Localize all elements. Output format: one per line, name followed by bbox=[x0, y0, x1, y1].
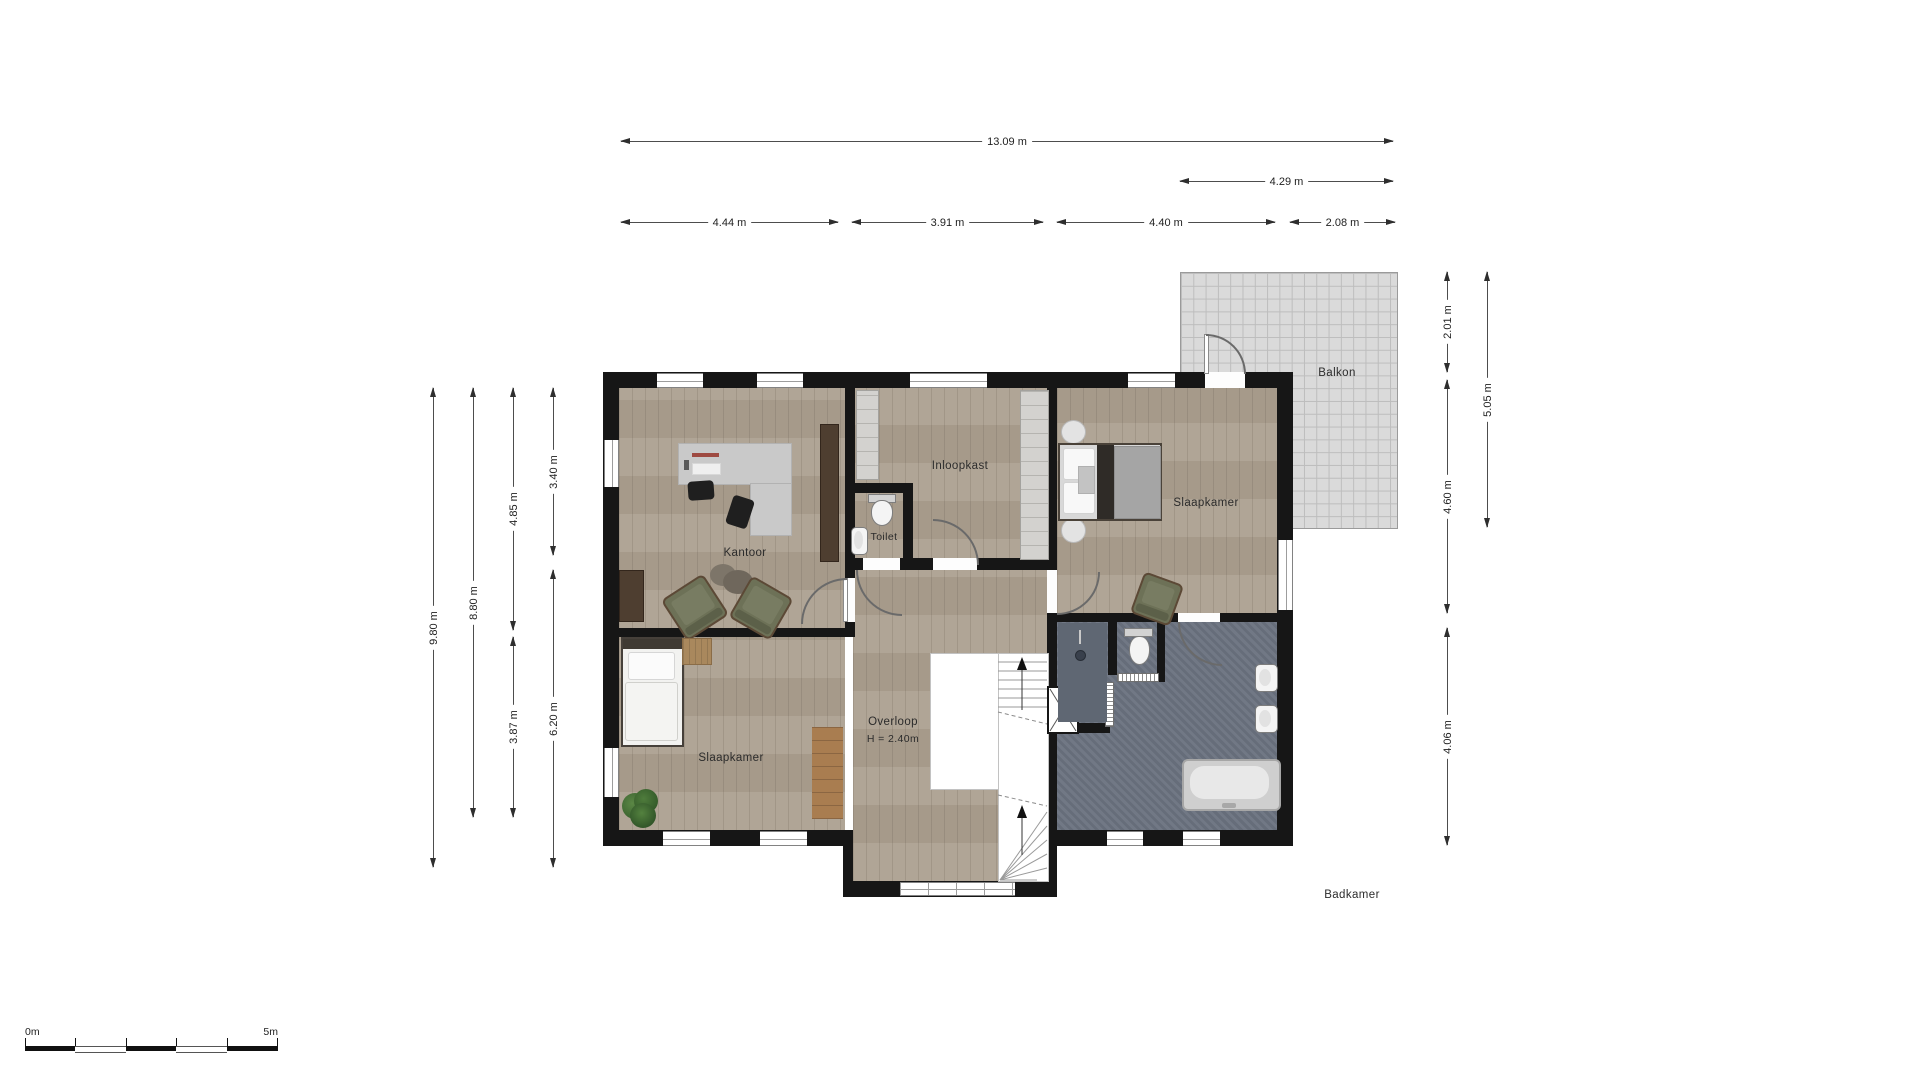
toilet-sink-basin bbox=[854, 531, 863, 549]
bed-left-duvet bbox=[625, 682, 678, 741]
arrow-up-icon bbox=[510, 636, 516, 646]
dim-balcony-top-depth: 2.01 m bbox=[1447, 272, 1448, 372]
arrow-right-icon bbox=[1384, 178, 1394, 184]
scale-segment-black bbox=[126, 1046, 176, 1051]
dim-middle-width-label: 3.91 m bbox=[926, 217, 970, 229]
arrow-down-icon bbox=[430, 858, 436, 868]
dim-balcony-full-depth-label: 5.05 m bbox=[1482, 378, 1494, 422]
bed-left-headboard bbox=[623, 639, 682, 649]
scale-segment-black bbox=[227, 1046, 278, 1051]
dim-badkamer-depth-label: 4.06 m bbox=[1442, 715, 1454, 759]
kantoor-low-cabinet bbox=[619, 570, 644, 622]
wooden-rug bbox=[812, 727, 843, 819]
bathtub bbox=[1182, 759, 1281, 811]
dim-lower-left-depth: 6.20 m bbox=[553, 570, 554, 867]
bathtub-inner bbox=[1190, 766, 1269, 799]
arrow-left-icon bbox=[620, 138, 630, 144]
arrow-up-icon bbox=[1444, 627, 1450, 637]
window-inloopkast-top bbox=[910, 373, 987, 388]
shower-head bbox=[1079, 630, 1081, 644]
wc-nook-glass bbox=[1117, 673, 1159, 682]
dim-top-total-label: 13.09 m bbox=[982, 136, 1032, 148]
room-label-badkamer: Badkamer bbox=[1324, 889, 1380, 901]
arrow-down-icon bbox=[510, 808, 516, 818]
window-kantoor-top-1 bbox=[657, 373, 703, 388]
window-kantoor-left bbox=[604, 440, 619, 487]
room-label-balkon: Balkon bbox=[1318, 367, 1356, 379]
window-kantoor-top-2 bbox=[757, 373, 803, 388]
room-label-slaapkamer-right: Slaapkamer bbox=[1173, 497, 1238, 509]
scale-segment-white bbox=[75, 1046, 126, 1053]
dim-balcony-overhang-label: 2.08 m bbox=[1321, 217, 1365, 229]
wc-bowl bbox=[1129, 636, 1150, 665]
arrow-down-icon bbox=[470, 808, 476, 818]
toilet-wall-right bbox=[903, 483, 913, 570]
bathroom-sink-1-basin bbox=[1259, 669, 1271, 686]
kantoor-east-wall-lower bbox=[845, 622, 855, 637]
arrow-right-icon bbox=[1386, 219, 1396, 225]
toilet-wall-bottom-left bbox=[845, 558, 863, 570]
bed-right-band bbox=[1097, 445, 1114, 519]
arrow-left-icon bbox=[1289, 219, 1299, 225]
bedside-shelf bbox=[682, 638, 712, 665]
toilet-sink bbox=[851, 527, 868, 555]
arrow-up-icon bbox=[550, 569, 556, 579]
arrow-right-icon bbox=[1384, 138, 1394, 144]
office-chair-1 bbox=[687, 480, 714, 501]
room-label-inloopkast: Inloopkast bbox=[932, 460, 988, 472]
dim-kantoor-width: 4.44 m bbox=[621, 222, 838, 223]
plant bbox=[622, 789, 659, 828]
bed-right-blanket-fold bbox=[1078, 466, 1095, 494]
arrow-up-icon bbox=[550, 387, 556, 397]
arrow-up-icon bbox=[430, 387, 436, 397]
badkamer-door-opening bbox=[1178, 613, 1220, 622]
desk-return bbox=[750, 483, 792, 536]
wc-nook-wall-left bbox=[1108, 622, 1117, 675]
bed-left bbox=[621, 637, 684, 747]
arrow-down-icon bbox=[550, 858, 556, 868]
bathroom-sink-1 bbox=[1255, 664, 1278, 692]
dim-kantoor-depth-label: 4.85 m bbox=[508, 487, 520, 531]
room-label-slaapkamer-left: Slaapkamer bbox=[698, 752, 763, 764]
window-badkamer-bottom-1 bbox=[1107, 831, 1143, 846]
window-slaapkamer-right-east bbox=[1278, 540, 1293, 610]
shower-drain bbox=[1075, 650, 1086, 661]
window-slaapkamer-left-bottom-2 bbox=[760, 831, 807, 846]
dim-lower-left-depth-label: 6.20 m bbox=[548, 697, 560, 741]
inloopkast-closet-east bbox=[1020, 390, 1049, 560]
scale-start-label: 0m bbox=[25, 1026, 40, 1038]
room-label-kantoor: Kantoor bbox=[723, 547, 766, 559]
desk-phone bbox=[684, 460, 689, 470]
dim-upper-left-depth: 3.40 m bbox=[553, 388, 554, 555]
dim-slaapkamer-left-depth: 3.87 m bbox=[513, 637, 514, 817]
hall-wall-below-toilet bbox=[900, 558, 933, 570]
arrow-right-icon bbox=[1266, 219, 1276, 225]
arrow-down-icon bbox=[1484, 518, 1490, 528]
arrow-left-icon bbox=[851, 219, 861, 225]
arrow-down-icon bbox=[1444, 604, 1450, 614]
dim-kantoor-width-label: 4.44 m bbox=[708, 217, 752, 229]
kantoor-slaapkamer-wall bbox=[619, 628, 845, 637]
arrow-left-icon bbox=[1056, 219, 1066, 225]
dim-balcony-width: 4.29 m bbox=[1180, 181, 1393, 182]
desk-keyboard-red bbox=[692, 453, 719, 457]
dim-middle-width: 3.91 m bbox=[852, 222, 1043, 223]
dim-badkamer-depth: 4.06 m bbox=[1447, 628, 1448, 845]
dim-slaapkamer-right-depth-label: 4.60 m bbox=[1442, 475, 1454, 519]
kantoor-tall-cabinet bbox=[820, 424, 839, 562]
dim-right-width: 4.40 m bbox=[1057, 222, 1275, 223]
dim-top-total: 13.09 m bbox=[621, 141, 1393, 142]
bed-left-pillow bbox=[628, 652, 675, 680]
bed-right-duvet bbox=[1114, 446, 1161, 519]
nightstand-top bbox=[1061, 420, 1086, 444]
toilet-door-opening bbox=[863, 558, 900, 570]
dim-balcony-overhang: 2.08 m bbox=[1290, 222, 1395, 223]
inloopkast-closet-west bbox=[856, 390, 879, 480]
exterior-wall-bottom-right bbox=[1047, 830, 1293, 846]
arrow-up-icon bbox=[510, 387, 516, 397]
dim-right-width-label: 4.40 m bbox=[1144, 217, 1188, 229]
stairs-graphic bbox=[925, 650, 1055, 885]
arrow-up-icon bbox=[1444, 379, 1450, 389]
dim-slaapkamer-left-depth-label: 3.87 m bbox=[508, 705, 520, 749]
arrow-down-icon bbox=[510, 621, 516, 631]
dim-upper-left-depth-label: 3.40 m bbox=[548, 450, 560, 494]
scale-segment-black bbox=[25, 1046, 75, 1051]
window-slaapkamer-right-top bbox=[1128, 373, 1175, 388]
plant-foliage-3 bbox=[630, 803, 656, 828]
window-slaapkamer-left-west bbox=[604, 748, 619, 797]
arrow-down-icon bbox=[550, 546, 556, 556]
room-label-overloop-height: H = 2.40m bbox=[867, 733, 919, 745]
arrow-up-icon bbox=[470, 387, 476, 397]
arrow-left-icon bbox=[1179, 178, 1189, 184]
arrow-up-icon bbox=[1444, 271, 1450, 281]
exterior-wall-bottom-left bbox=[603, 830, 853, 846]
scale-segment-white bbox=[176, 1046, 227, 1053]
arrow-left-icon bbox=[620, 219, 630, 225]
bathroom-sink-2-basin bbox=[1259, 710, 1271, 727]
arrow-up-icon bbox=[1484, 271, 1490, 281]
scale-end-label: 5m bbox=[263, 1026, 278, 1038]
dim-balcony-top-depth-label: 2.01 m bbox=[1442, 300, 1454, 344]
dim-left-total: 9.80 m bbox=[433, 388, 434, 867]
dim-left-interior-label: 8.80 m bbox=[468, 581, 480, 625]
toilet-bowl bbox=[871, 500, 893, 526]
dim-left-total-label: 9.80 m bbox=[428, 606, 440, 650]
nightstand-bottom bbox=[1061, 518, 1086, 543]
shower-floor bbox=[1058, 623, 1107, 722]
room-label-toilet: Toilet bbox=[871, 531, 898, 543]
window-badkamer-bottom-2 bbox=[1183, 831, 1220, 846]
bathroom-sink-2 bbox=[1255, 705, 1278, 733]
badkamer-wall-top-east bbox=[1220, 613, 1277, 622]
window-slaapkamer-left-bottom-1 bbox=[663, 831, 710, 846]
dim-left-interior: 8.80 m bbox=[473, 388, 474, 817]
arrow-down-icon bbox=[1444, 836, 1450, 846]
balcony-door-opening bbox=[1205, 372, 1245, 388]
room-label-overloop: Overloop bbox=[868, 716, 918, 728]
scale-bar: 0m 5m bbox=[25, 1032, 278, 1052]
bed-right bbox=[1058, 443, 1162, 521]
dim-kantoor-depth: 4.85 m bbox=[513, 388, 514, 630]
arrow-right-icon bbox=[829, 219, 839, 225]
desk-notepad bbox=[692, 463, 721, 475]
floor-plan-canvas: Kantoor Toilet Inloopkast Slaapkamer Sla… bbox=[0, 0, 1920, 1080]
dim-balcony-full-depth: 5.05 m bbox=[1487, 272, 1488, 527]
arrow-down-icon bbox=[1444, 363, 1450, 373]
arrow-right-icon bbox=[1034, 219, 1044, 225]
dim-slaapkamer-right-depth: 4.60 m bbox=[1447, 380, 1448, 613]
dim-balcony-width-label: 4.29 m bbox=[1265, 176, 1309, 188]
slaapkamer-right-door-opening bbox=[1047, 570, 1057, 613]
bathtub-faucet bbox=[1222, 803, 1236, 808]
